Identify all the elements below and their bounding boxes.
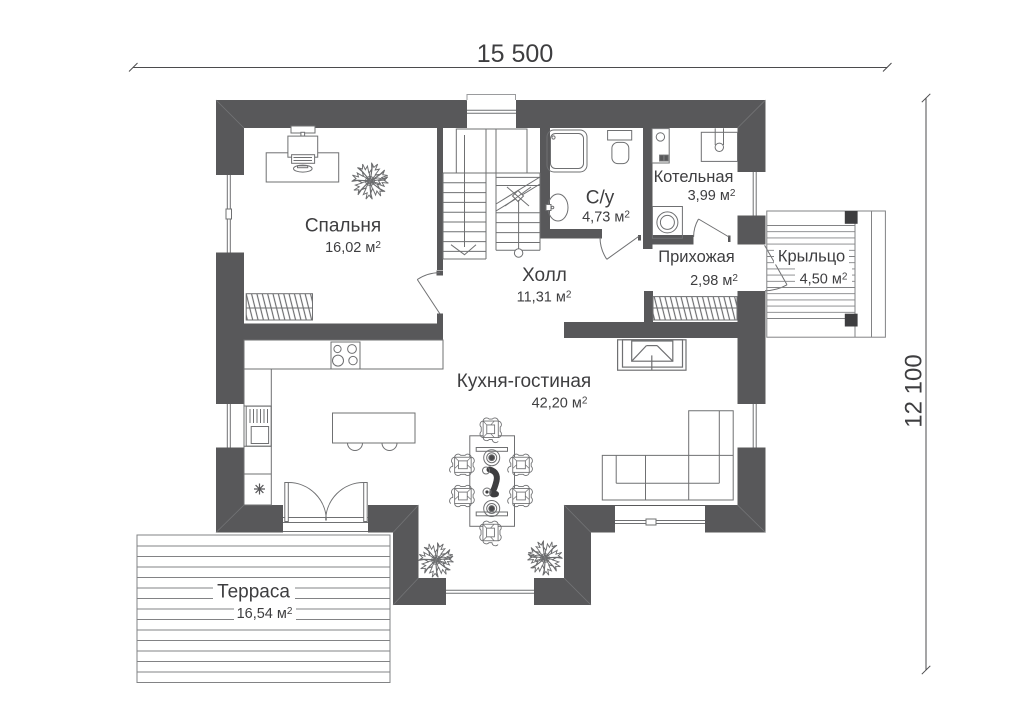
svg-text:Спальня: Спальня bbox=[305, 216, 381, 237]
svg-text:Терраса: Терраса bbox=[217, 582, 290, 603]
svg-text:Прихожая: Прихожая bbox=[658, 248, 734, 266]
svg-text:16,02 м2: 16,02 м2 bbox=[325, 240, 381, 256]
svg-text:4,50 м2: 4,50 м2 bbox=[800, 272, 848, 288]
svg-text:12 100: 12 100 bbox=[901, 354, 928, 427]
svg-text:3,99 м2: 3,99 м2 bbox=[688, 188, 736, 204]
svg-text:42,20 м2: 42,20 м2 bbox=[532, 396, 588, 412]
svg-text:11,31 м2: 11,31 м2 bbox=[517, 290, 572, 306]
svg-text:С/у: С/у bbox=[586, 188, 615, 209]
svg-text:Котельная: Котельная bbox=[654, 168, 734, 186]
svg-text:Крыльцо: Крыльцо bbox=[778, 248, 845, 266]
svg-text:15 500: 15 500 bbox=[477, 40, 553, 68]
svg-text:2,98 м2: 2,98 м2 bbox=[690, 273, 738, 289]
svg-text:Холл: Холл bbox=[522, 265, 567, 286]
svg-text:4,73 м2: 4,73 м2 bbox=[582, 210, 630, 226]
svg-text:Кухня-гостиная: Кухня-гостиная bbox=[457, 371, 591, 392]
svg-text:16,54 м2: 16,54 м2 bbox=[237, 606, 293, 622]
